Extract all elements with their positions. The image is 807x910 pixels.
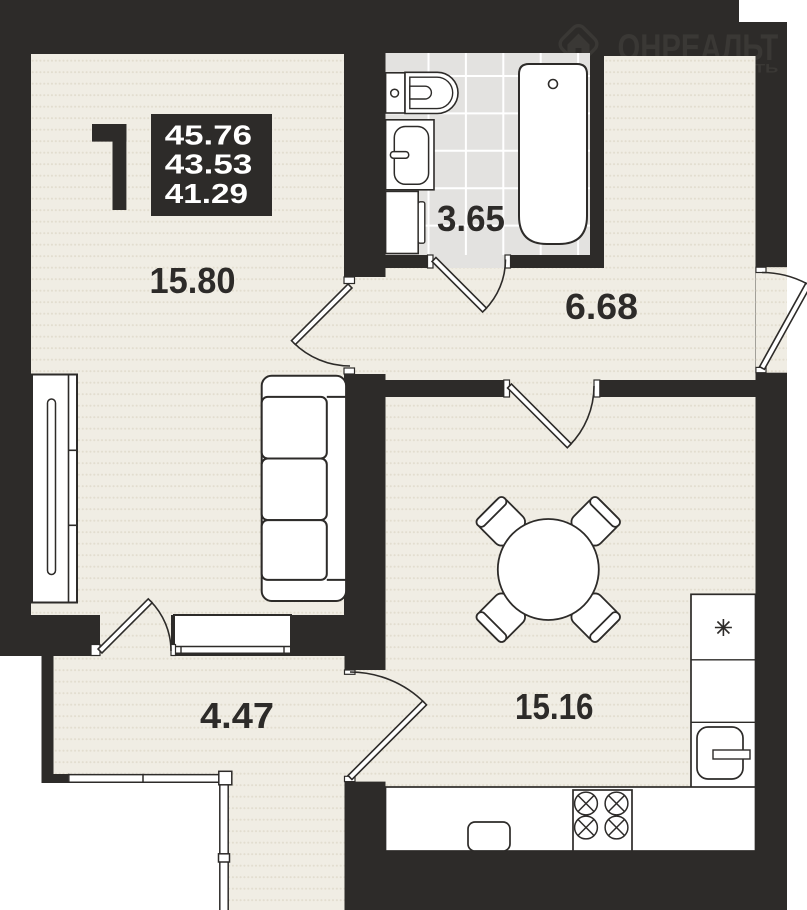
svg-text:4.47: 4.47 [200,695,274,736]
svg-text:15.16: 15.16 [515,686,594,727]
svg-text:3.65: 3.65 [437,198,505,239]
svg-text:45.76: 45.76 [165,120,252,151]
svg-text:43.53: 43.53 [165,149,253,180]
svg-text:15.80: 15.80 [150,260,236,301]
svg-text:41.29: 41.29 [165,178,248,209]
svg-text:6.68: 6.68 [565,286,638,327]
